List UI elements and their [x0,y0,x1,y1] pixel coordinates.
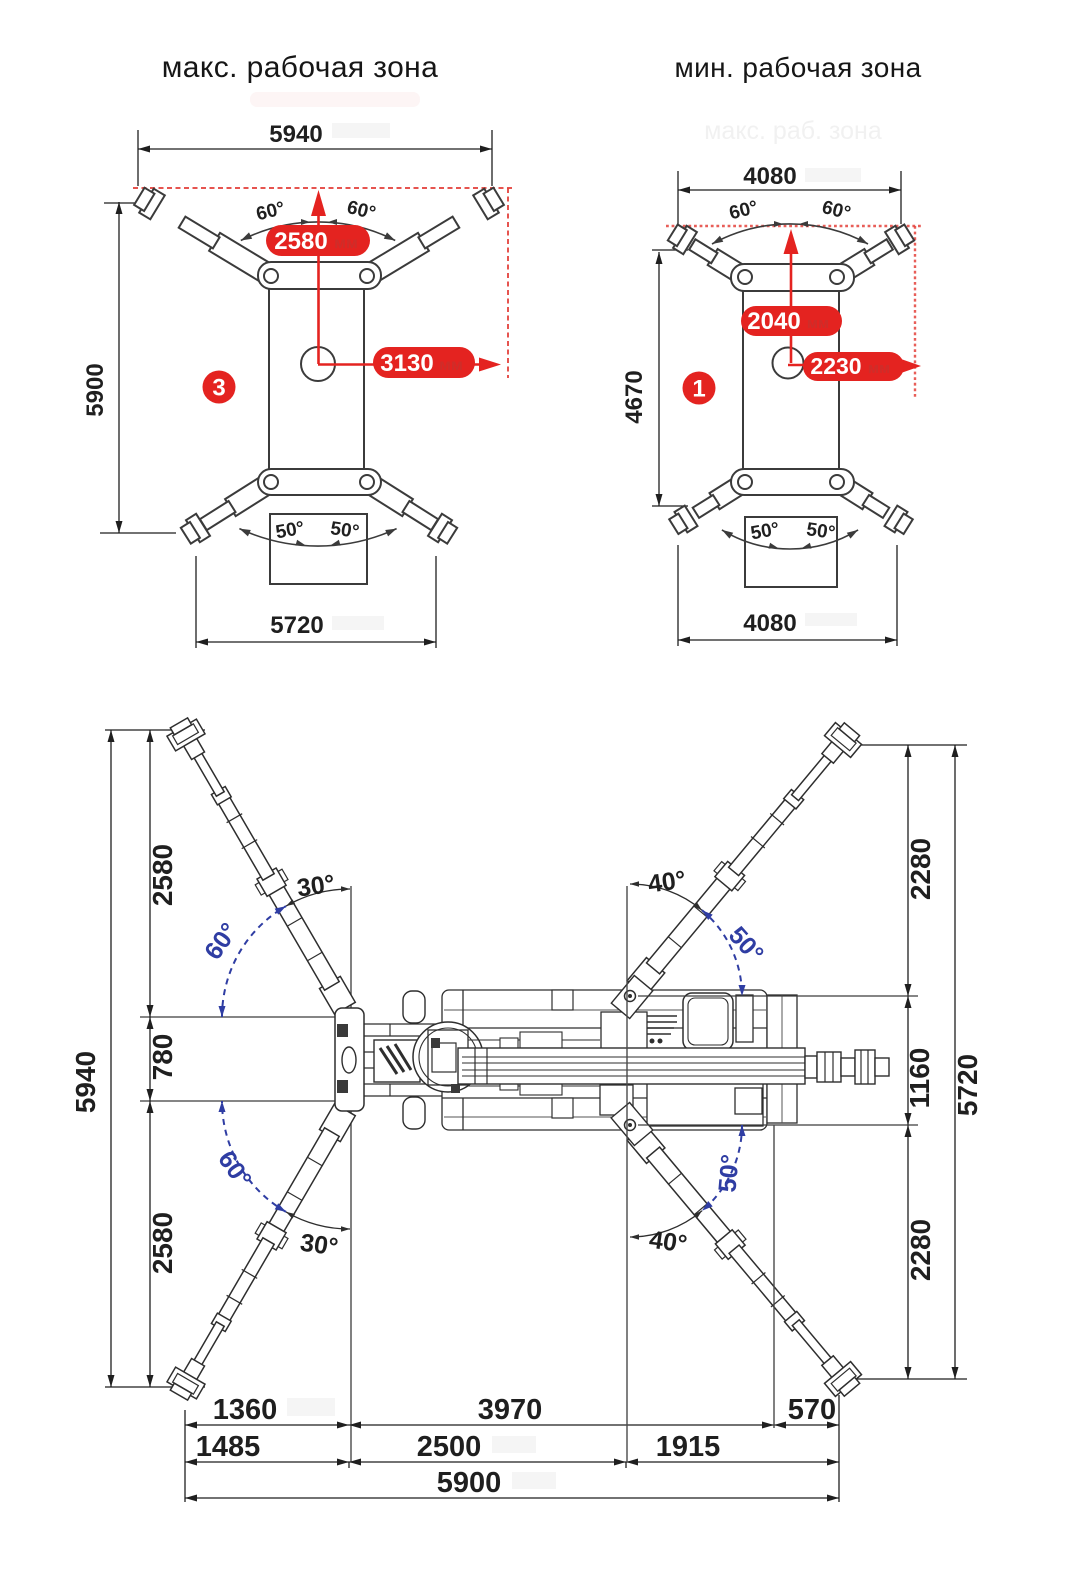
svg-text:макс. раб. зона: макс. раб. зона [704,117,882,145]
svg-text:570: 570 [788,1394,836,1426]
svg-text:5940: 5940 [70,1051,101,1113]
svg-text:1160: 1160 [904,1048,935,1109]
svg-text:5940: 5940 [269,121,322,148]
svg-text:1360: 1360 [213,1394,278,1426]
svg-text:5720: 5720 [952,1054,983,1116]
svg-text:40°: 40° [646,866,687,899]
svg-text:3130: 3130 [380,350,433,377]
svg-text:50°: 50° [329,518,360,543]
svg-text:мм: мм [807,315,829,332]
svg-text:мм: мм [334,235,358,252]
svg-text:1: 1 [692,376,705,403]
svg-text:2580: 2580 [147,1212,178,1274]
svg-text:5720: 5720 [270,612,323,639]
svg-text:30°: 30° [298,1229,339,1262]
svg-text:2580: 2580 [274,228,327,255]
svg-text:4080: 4080 [743,163,796,190]
svg-text:2500: 2500 [417,1431,482,1463]
svg-text:мин. рабочая зона: мин. рабочая зона [674,52,921,83]
svg-text:2580: 2580 [147,844,178,906]
svg-text:30°: 30° [295,870,336,903]
svg-text:1915: 1915 [656,1431,721,1463]
svg-text:2280: 2280 [905,838,936,900]
svg-text:мм: мм [439,357,463,374]
svg-text:2280: 2280 [905,1219,936,1281]
svg-text:4670: 4670 [621,370,648,423]
svg-text:1485: 1485 [196,1431,261,1463]
svg-text:мм: мм [868,360,890,377]
svg-text:4080: 4080 [743,610,796,637]
svg-text:3970: 3970 [478,1394,543,1426]
svg-text:50°: 50° [805,519,836,544]
svg-text:3: 3 [212,375,225,402]
svg-text:макс. рабочая зона: макс. рабочая зона [162,51,438,84]
svg-text:2230: 2230 [810,353,861,379]
svg-text:5900: 5900 [437,1467,502,1499]
svg-text:50°: 50° [713,1153,744,1193]
svg-text:5900: 5900 [82,363,109,416]
svg-text:780: 780 [147,1034,178,1081]
svg-text:40°: 40° [647,1226,688,1259]
svg-text:2040: 2040 [747,308,800,335]
